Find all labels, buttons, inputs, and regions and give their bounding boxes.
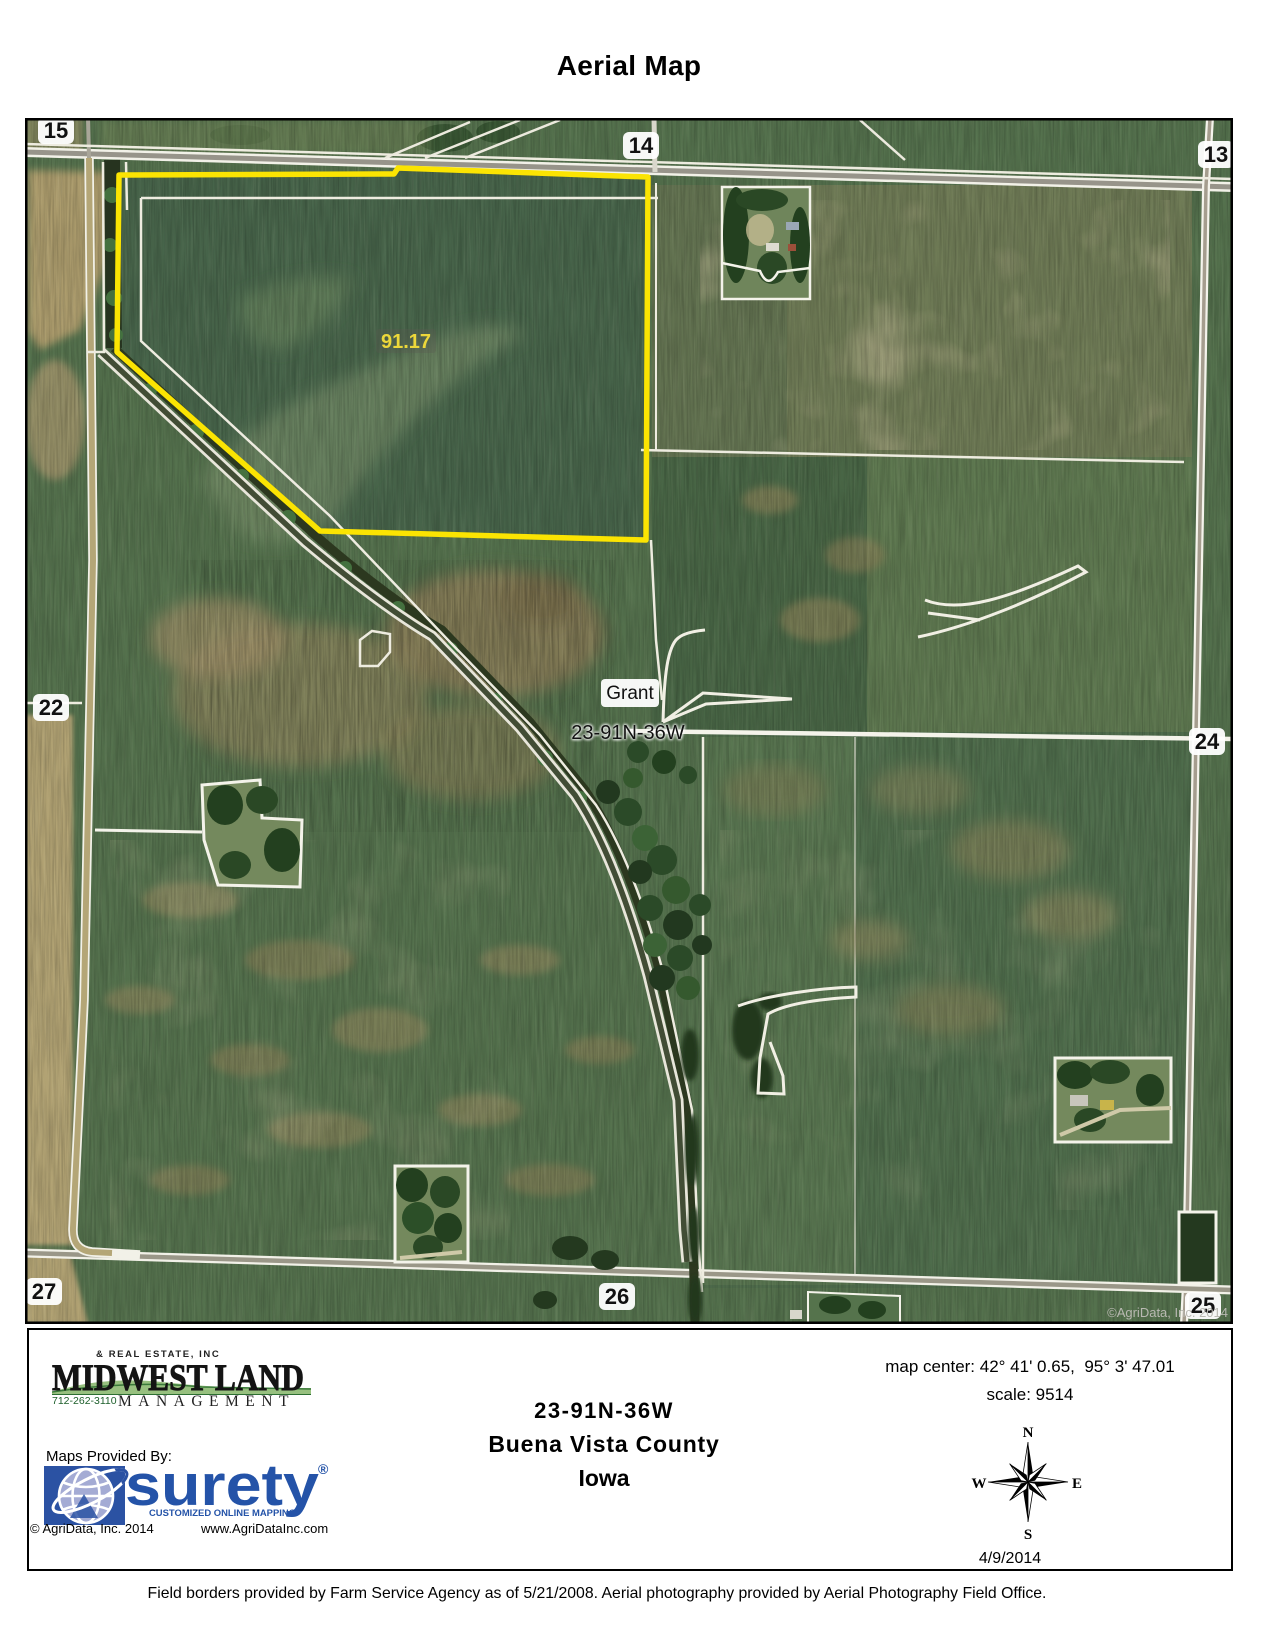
svg-text:®: ® (318, 1461, 329, 1477)
svg-text:22: 22 (39, 695, 63, 720)
svg-text:27: 27 (32, 1279, 56, 1304)
svg-text:MANAGEMENT: MANAGEMENT (118, 1393, 295, 1408)
svg-text:14: 14 (629, 133, 654, 158)
svg-text:CUSTOMIZED ONLINE MAPPING: CUSTOMIZED ONLINE MAPPING (149, 1508, 296, 1519)
svg-text:©AgriData, Inc. 2014: ©AgriData, Inc. 2014 (1107, 1305, 1228, 1320)
svg-text:91.17: 91.17 (381, 331, 431, 353)
svg-text:Grant: Grant (606, 683, 654, 704)
svg-text:26: 26 (605, 1284, 629, 1309)
svg-text:W: W (972, 1476, 987, 1492)
svg-text:15: 15 (44, 118, 68, 143)
svg-text:E: E (1072, 1476, 1082, 1492)
svg-text:712-262-3110: 712-262-3110 (52, 1395, 117, 1407)
svg-text:23-91N-36W: 23-91N-36W (571, 722, 685, 744)
svg-text:24: 24 (1195, 729, 1220, 754)
svg-text:N: N (1023, 1427, 1034, 1441)
svg-text:13: 13 (1204, 142, 1228, 167)
svg-text:S: S (1024, 1527, 1032, 1543)
